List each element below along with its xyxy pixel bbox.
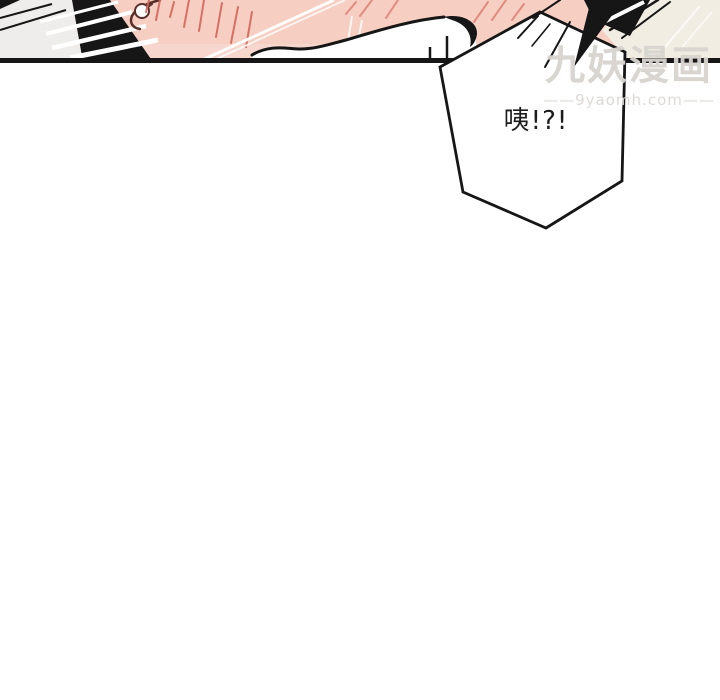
- offwhite-left-area: [0, 0, 83, 62]
- comic-page: 咦!?! 九妖漫画 ——9yaomh.com——: [0, 0, 720, 700]
- speech-bubble-text: 咦!?!: [504, 106, 569, 136]
- blank-page-area: [0, 240, 720, 700]
- comic-panel-artwork: 咦!?!: [0, 0, 720, 240]
